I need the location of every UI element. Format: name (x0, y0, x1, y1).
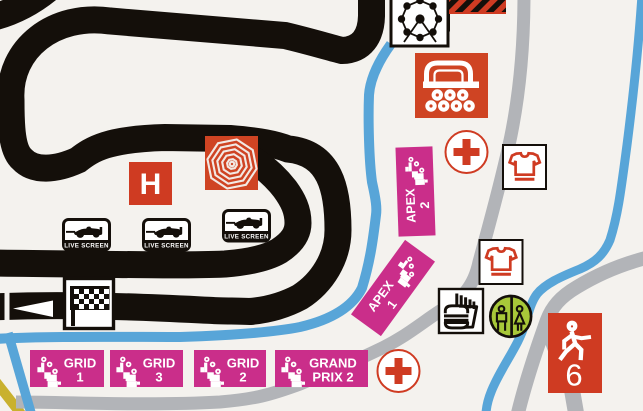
svg-text:6: 6 (565, 358, 582, 393)
svg-text:H: H (140, 168, 162, 201)
svg-text:GRID: GRID (64, 356, 97, 371)
svg-text:LIVE SCREEN: LIVE SCREEN (64, 242, 109, 249)
svg-text:3: 3 (155, 369, 162, 384)
svg-text:2: 2 (418, 201, 432, 208)
svg-text:1: 1 (76, 369, 83, 384)
svg-text:PRIX 2: PRIX 2 (312, 369, 353, 384)
svg-text:GRID: GRID (227, 356, 260, 371)
svg-text:APEX: APEX (403, 188, 418, 223)
svg-text:GRID: GRID (143, 356, 176, 371)
svg-text:2: 2 (239, 369, 246, 384)
svg-text:GRAND: GRAND (309, 356, 357, 371)
